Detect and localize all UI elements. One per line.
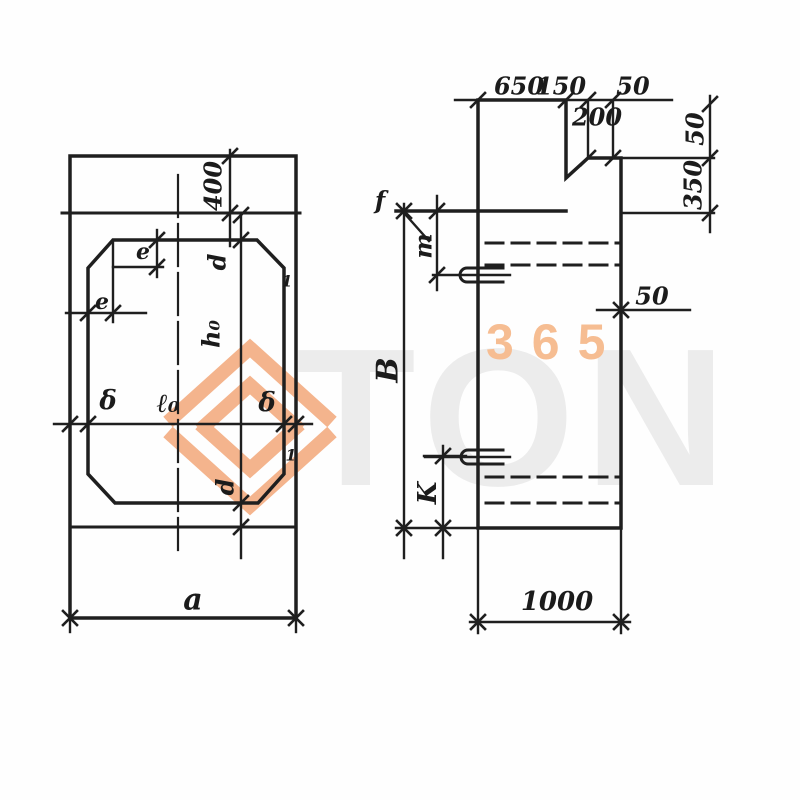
dim-l0-label: ℓ₀ — [157, 389, 180, 419]
plan-view-outline — [62, 156, 300, 618]
label-B: B — [371, 357, 406, 382]
dim-400-label: 400 — [199, 161, 228, 211]
lifting-loop-upper — [433, 268, 510, 282]
section-view-outline — [396, 100, 621, 528]
dim-e-vertical-label: e — [136, 239, 150, 265]
dim-a-label: a — [183, 583, 202, 618]
dim-h0-label: h₀ — [197, 320, 226, 348]
section-mark-1-bottom: 1 — [285, 446, 296, 465]
dim-delta-right-label: δ — [258, 388, 275, 418]
drawing-sheet: TON 365 — [0, 0, 800, 800]
dim-1000-label: 1000 — [521, 587, 593, 617]
dim-150-label: 150 — [536, 72, 586, 101]
dim-delta-left-label: δ — [99, 386, 116, 416]
dim-50-mid-label: 50 — [635, 282, 668, 311]
dim-50-right-label: 50 — [681, 112, 710, 145]
section-view-ticks — [397, 93, 717, 629]
dim-350-label: 350 — [679, 160, 708, 210]
label-f: f — [375, 186, 385, 215]
hidden-void-lines — [486, 243, 618, 503]
dim-50-top-label: 50 — [616, 72, 649, 101]
section-mark-1-top: 1 — [281, 272, 292, 291]
dim-d-top-label: d — [203, 254, 232, 271]
dim-200-label: 200 — [572, 103, 622, 132]
label-m: m — [409, 233, 438, 258]
dim-d-bottom-label: d — [211, 479, 240, 496]
section-view-dim-lines — [404, 96, 714, 633]
dim-e-horizontal-label: e — [95, 289, 109, 315]
label-K: K — [413, 482, 443, 505]
